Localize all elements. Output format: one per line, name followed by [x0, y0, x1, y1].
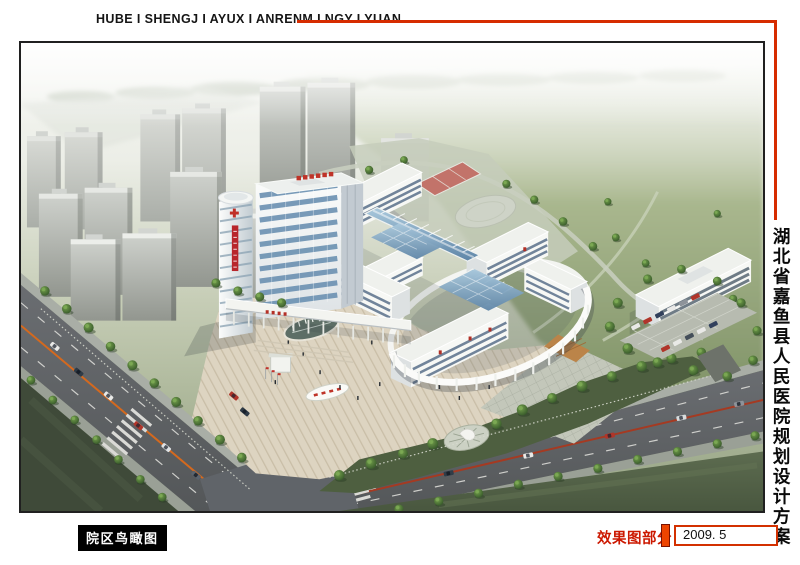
vertical-name-sign — [232, 225, 238, 271]
rendering-frame — [19, 41, 765, 513]
date-text: 2009. 5 — [683, 527, 726, 542]
aerial-rendering — [21, 43, 763, 511]
accent-rule-vertical — [774, 20, 777, 220]
date-box: 2009. 5 — [674, 525, 778, 546]
presentation-board: HUBE I SHENGJ I AYUX I ANRENM I NGY I YU… — [0, 0, 800, 565]
gate-kiosk — [269, 353, 293, 372]
page-title-romanized: HUBE I SHENGJ I AYUX I ANRENM I NGY I YU… — [96, 12, 401, 26]
image-caption: 院区鸟瞰图 — [78, 525, 167, 551]
accent-rule-horizontal — [297, 20, 777, 23]
page-title-vertical: 湖北省嘉鱼县人民医院规划设计方案 — [771, 227, 791, 547]
mist-overlay — [21, 43, 763, 126]
date-accent-bar — [661, 524, 670, 547]
